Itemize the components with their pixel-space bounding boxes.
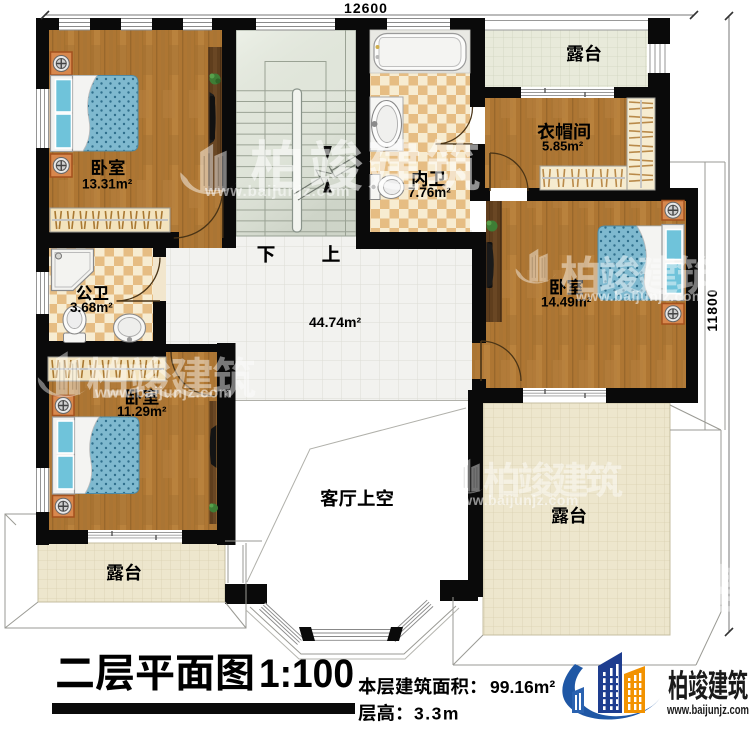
svg-text:3.3m: 3.3m [414, 704, 460, 724]
svg-text:www.baijunjz.com: www.baijunjz.com [94, 385, 232, 402]
svg-text:3.68m²: 3.68m² [70, 300, 113, 315]
svg-text:www.baijunjz.com: www.baijunjz.com [449, 492, 579, 508]
svg-text:11800: 11800 [704, 288, 720, 331]
svg-text:44.74m²: 44.74m² [309, 314, 361, 330]
svg-text:www.baijunjz.com: www.baijunjz.com [575, 288, 705, 304]
svg-text:5.85m²: 5.85m² [542, 139, 584, 154]
svg-text:www.baijunjz.com: www.baijunjz.com [204, 183, 350, 200]
svg-text:11.29m²: 11.29m² [117, 404, 167, 419]
svg-text:13.31m²: 13.31m² [82, 177, 133, 192]
svg-text:12600: 12600 [344, 0, 388, 16]
svg-text:www.baijunjz.com: www.baijunjz.com [666, 703, 749, 717]
svg-text:z.com: z.com [686, 581, 728, 597]
svg-text:1:100: 1:100 [259, 652, 354, 696]
svg-text:99.16m²: 99.16m² [490, 677, 555, 697]
